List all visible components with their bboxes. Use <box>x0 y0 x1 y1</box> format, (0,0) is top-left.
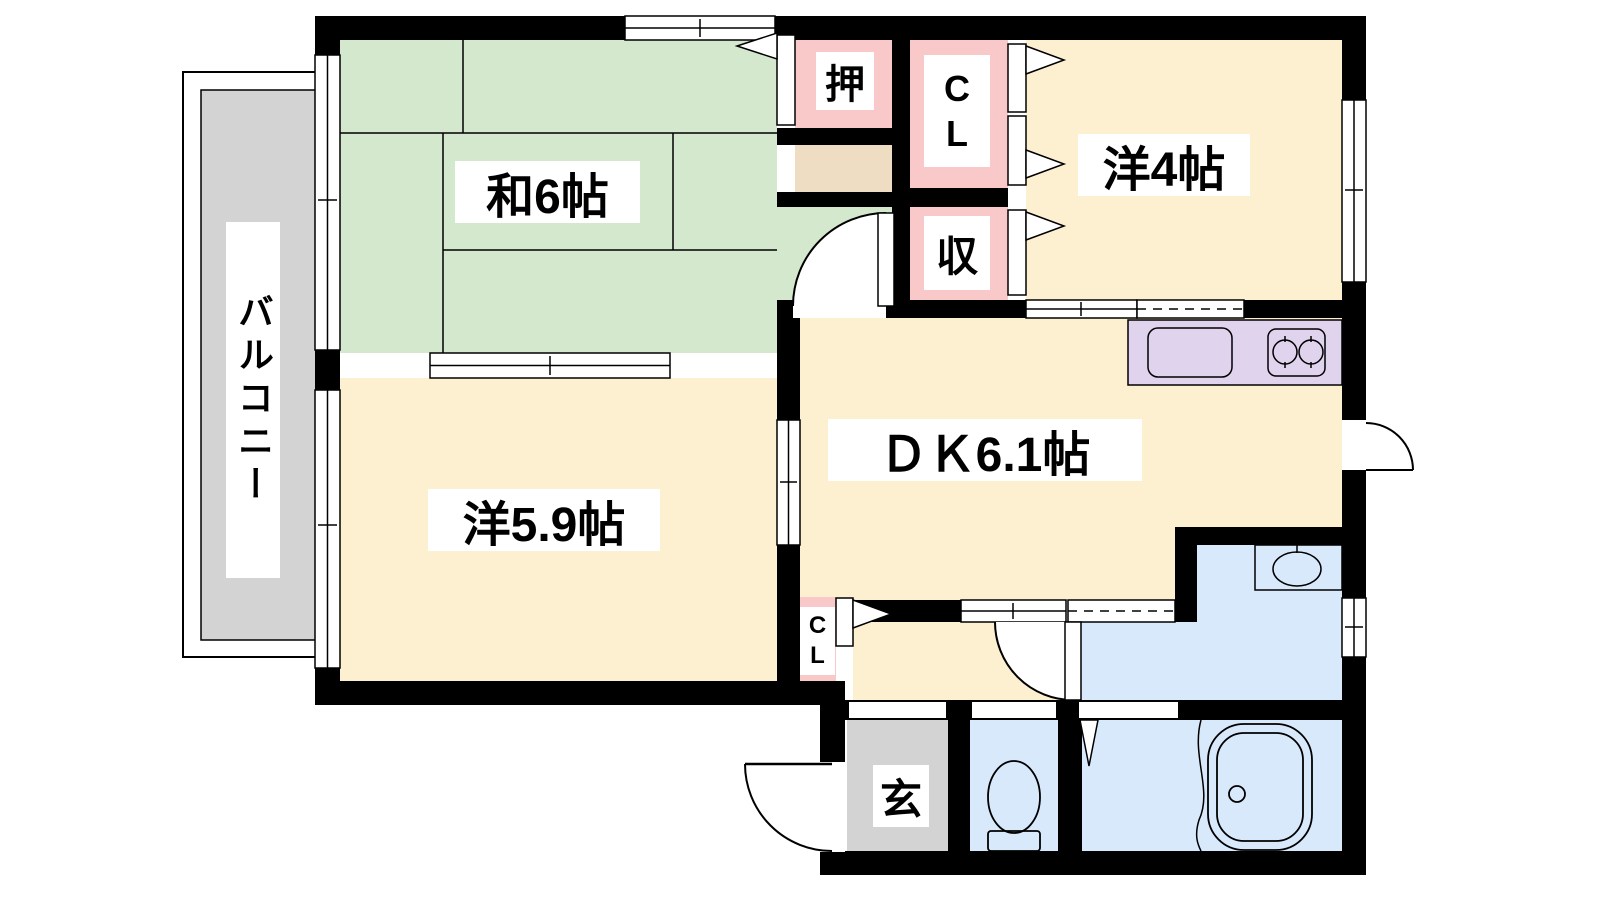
wall-segment <box>820 851 1366 875</box>
wall-segment <box>1175 527 1342 545</box>
entrance-opening <box>820 762 845 852</box>
wall-segment <box>1058 700 1082 851</box>
wall-segment <box>777 300 793 318</box>
wall-segment <box>886 300 1026 318</box>
label-closet-lower-line1: C <box>809 611 826 641</box>
label-oshiire: 押 <box>816 52 874 110</box>
label-washitsu: 和6帖 <box>455 161 640 223</box>
wall-segment <box>910 188 1008 207</box>
wall-segment <box>948 700 970 851</box>
label-western4: 洋4帖 <box>1078 134 1250 196</box>
closet-door-leaf <box>1008 44 1026 112</box>
kitchen <box>1128 320 1342 385</box>
sliding-door-dk-hall <box>961 600 1066 622</box>
door-entrance <box>745 764 832 851</box>
oshiire-door-leaf <box>777 35 795 125</box>
sliding-door-washitsu-western59 <box>430 353 670 378</box>
label-balcony: バルコニー <box>226 222 280 578</box>
label-closet-lower-line2: L <box>810 641 825 671</box>
genkan-step <box>849 702 946 718</box>
window-top <box>625 16 775 40</box>
open-boundary-western4-dk <box>1137 300 1244 318</box>
label-closet-upper: C L <box>924 55 990 167</box>
label-western59: 洋5.9帖 <box>428 489 660 551</box>
wall-segment <box>315 16 1366 40</box>
door-leaf <box>1065 622 1081 700</box>
wall-segment <box>777 128 892 145</box>
door-dk-exterior <box>1366 423 1413 470</box>
sliding-door-western4-dk <box>1026 300 1137 318</box>
storage-door-leaf <box>1008 210 1026 295</box>
window-western59-west <box>315 390 340 668</box>
room-dk-lower <box>800 527 1175 600</box>
door-leaf <box>878 213 894 306</box>
label-storage: 収 <box>924 216 990 290</box>
washroom <box>1197 545 1342 622</box>
floorplan: 和6帖 洋4帖 洋5.9帖 ＤＫ6.1帖 バルコニー 玄 押 C L 収 C L <box>0 0 1600 900</box>
closet-lower-door-leaf <box>836 598 853 646</box>
toilet-door-opening <box>972 702 1056 718</box>
closet-door-leaf <box>1008 116 1026 185</box>
label-closet-upper-line1: C <box>944 66 970 111</box>
window-washitsu-west <box>315 55 340 350</box>
sliding-door-western59-dk <box>777 420 800 545</box>
label-closet-lower: C L <box>800 607 835 675</box>
label-closet-upper-line2: L <box>946 111 968 156</box>
wall-segment <box>777 192 892 207</box>
label-genkan: 玄 <box>873 765 929 827</box>
wall-segment <box>1244 300 1342 318</box>
washroom-passage <box>1081 622 1342 700</box>
window-western4-east <box>1342 100 1366 282</box>
label-dk: ＤＫ6.1帖 <box>828 419 1142 481</box>
open-boundary-dk-passage <box>1068 600 1175 622</box>
wall-segment <box>315 681 845 705</box>
bath-door-opening <box>1079 702 1178 718</box>
storage-shelf <box>795 145 892 192</box>
window-washroom-east <box>1342 598 1366 657</box>
door-opening <box>1342 420 1366 470</box>
